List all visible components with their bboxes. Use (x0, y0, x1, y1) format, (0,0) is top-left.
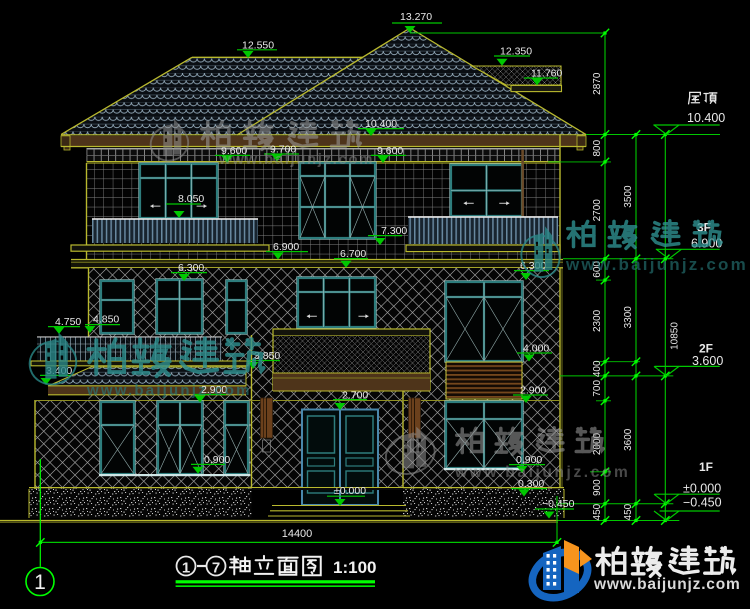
svg-text:1: 1 (182, 560, 190, 577)
svg-text:400: 400 (592, 360, 603, 377)
svg-text:2300: 2300 (592, 309, 603, 332)
svg-text:1F: 1F (699, 460, 713, 474)
svg-text:−0.450: −0.450 (683, 496, 722, 510)
svg-text:8.050: 8.050 (178, 193, 204, 205)
svg-text:450: 450 (592, 503, 603, 520)
svg-text:450: 450 (623, 503, 634, 520)
svg-text:13.270: 13.270 (400, 11, 432, 23)
svg-text:800: 800 (592, 139, 603, 156)
svg-text:www.baijunjz.com: www.baijunjz.com (86, 382, 252, 399)
svg-text:3600: 3600 (623, 428, 634, 451)
svg-text:www.baijunjz.com: www.baijunjz.com (565, 255, 748, 274)
svg-text:4.850: 4.850 (93, 313, 119, 325)
svg-text:700: 700 (592, 380, 603, 397)
svg-text:±0.000: ±0.000 (683, 482, 721, 496)
svg-text:900: 900 (592, 479, 603, 496)
svg-text:3.600: 3.600 (692, 354, 723, 368)
svg-text:±0.000: ±0.000 (334, 485, 366, 497)
svg-text:www.baijunjz.com: www.baijunjz.com (593, 576, 741, 593)
svg-text:7: 7 (212, 560, 220, 577)
svg-text:www.baijunjz.com: www.baijunjz.com (454, 464, 630, 481)
svg-text:2700: 2700 (592, 199, 603, 222)
svg-text:1:100: 1:100 (333, 558, 376, 577)
svg-text:3300: 3300 (623, 306, 634, 329)
svg-text:10850: 10850 (669, 322, 680, 350)
svg-text:14400: 14400 (282, 528, 313, 540)
svg-text:−0.450: −0.450 (542, 498, 575, 510)
svg-text:1: 1 (34, 571, 46, 594)
svg-text:10.400: 10.400 (687, 111, 725, 125)
svg-text:www.baijunjz.com: www.baijunjz.com (218, 151, 374, 168)
svg-text:3500: 3500 (623, 185, 634, 208)
svg-text:2870: 2870 (592, 72, 603, 95)
